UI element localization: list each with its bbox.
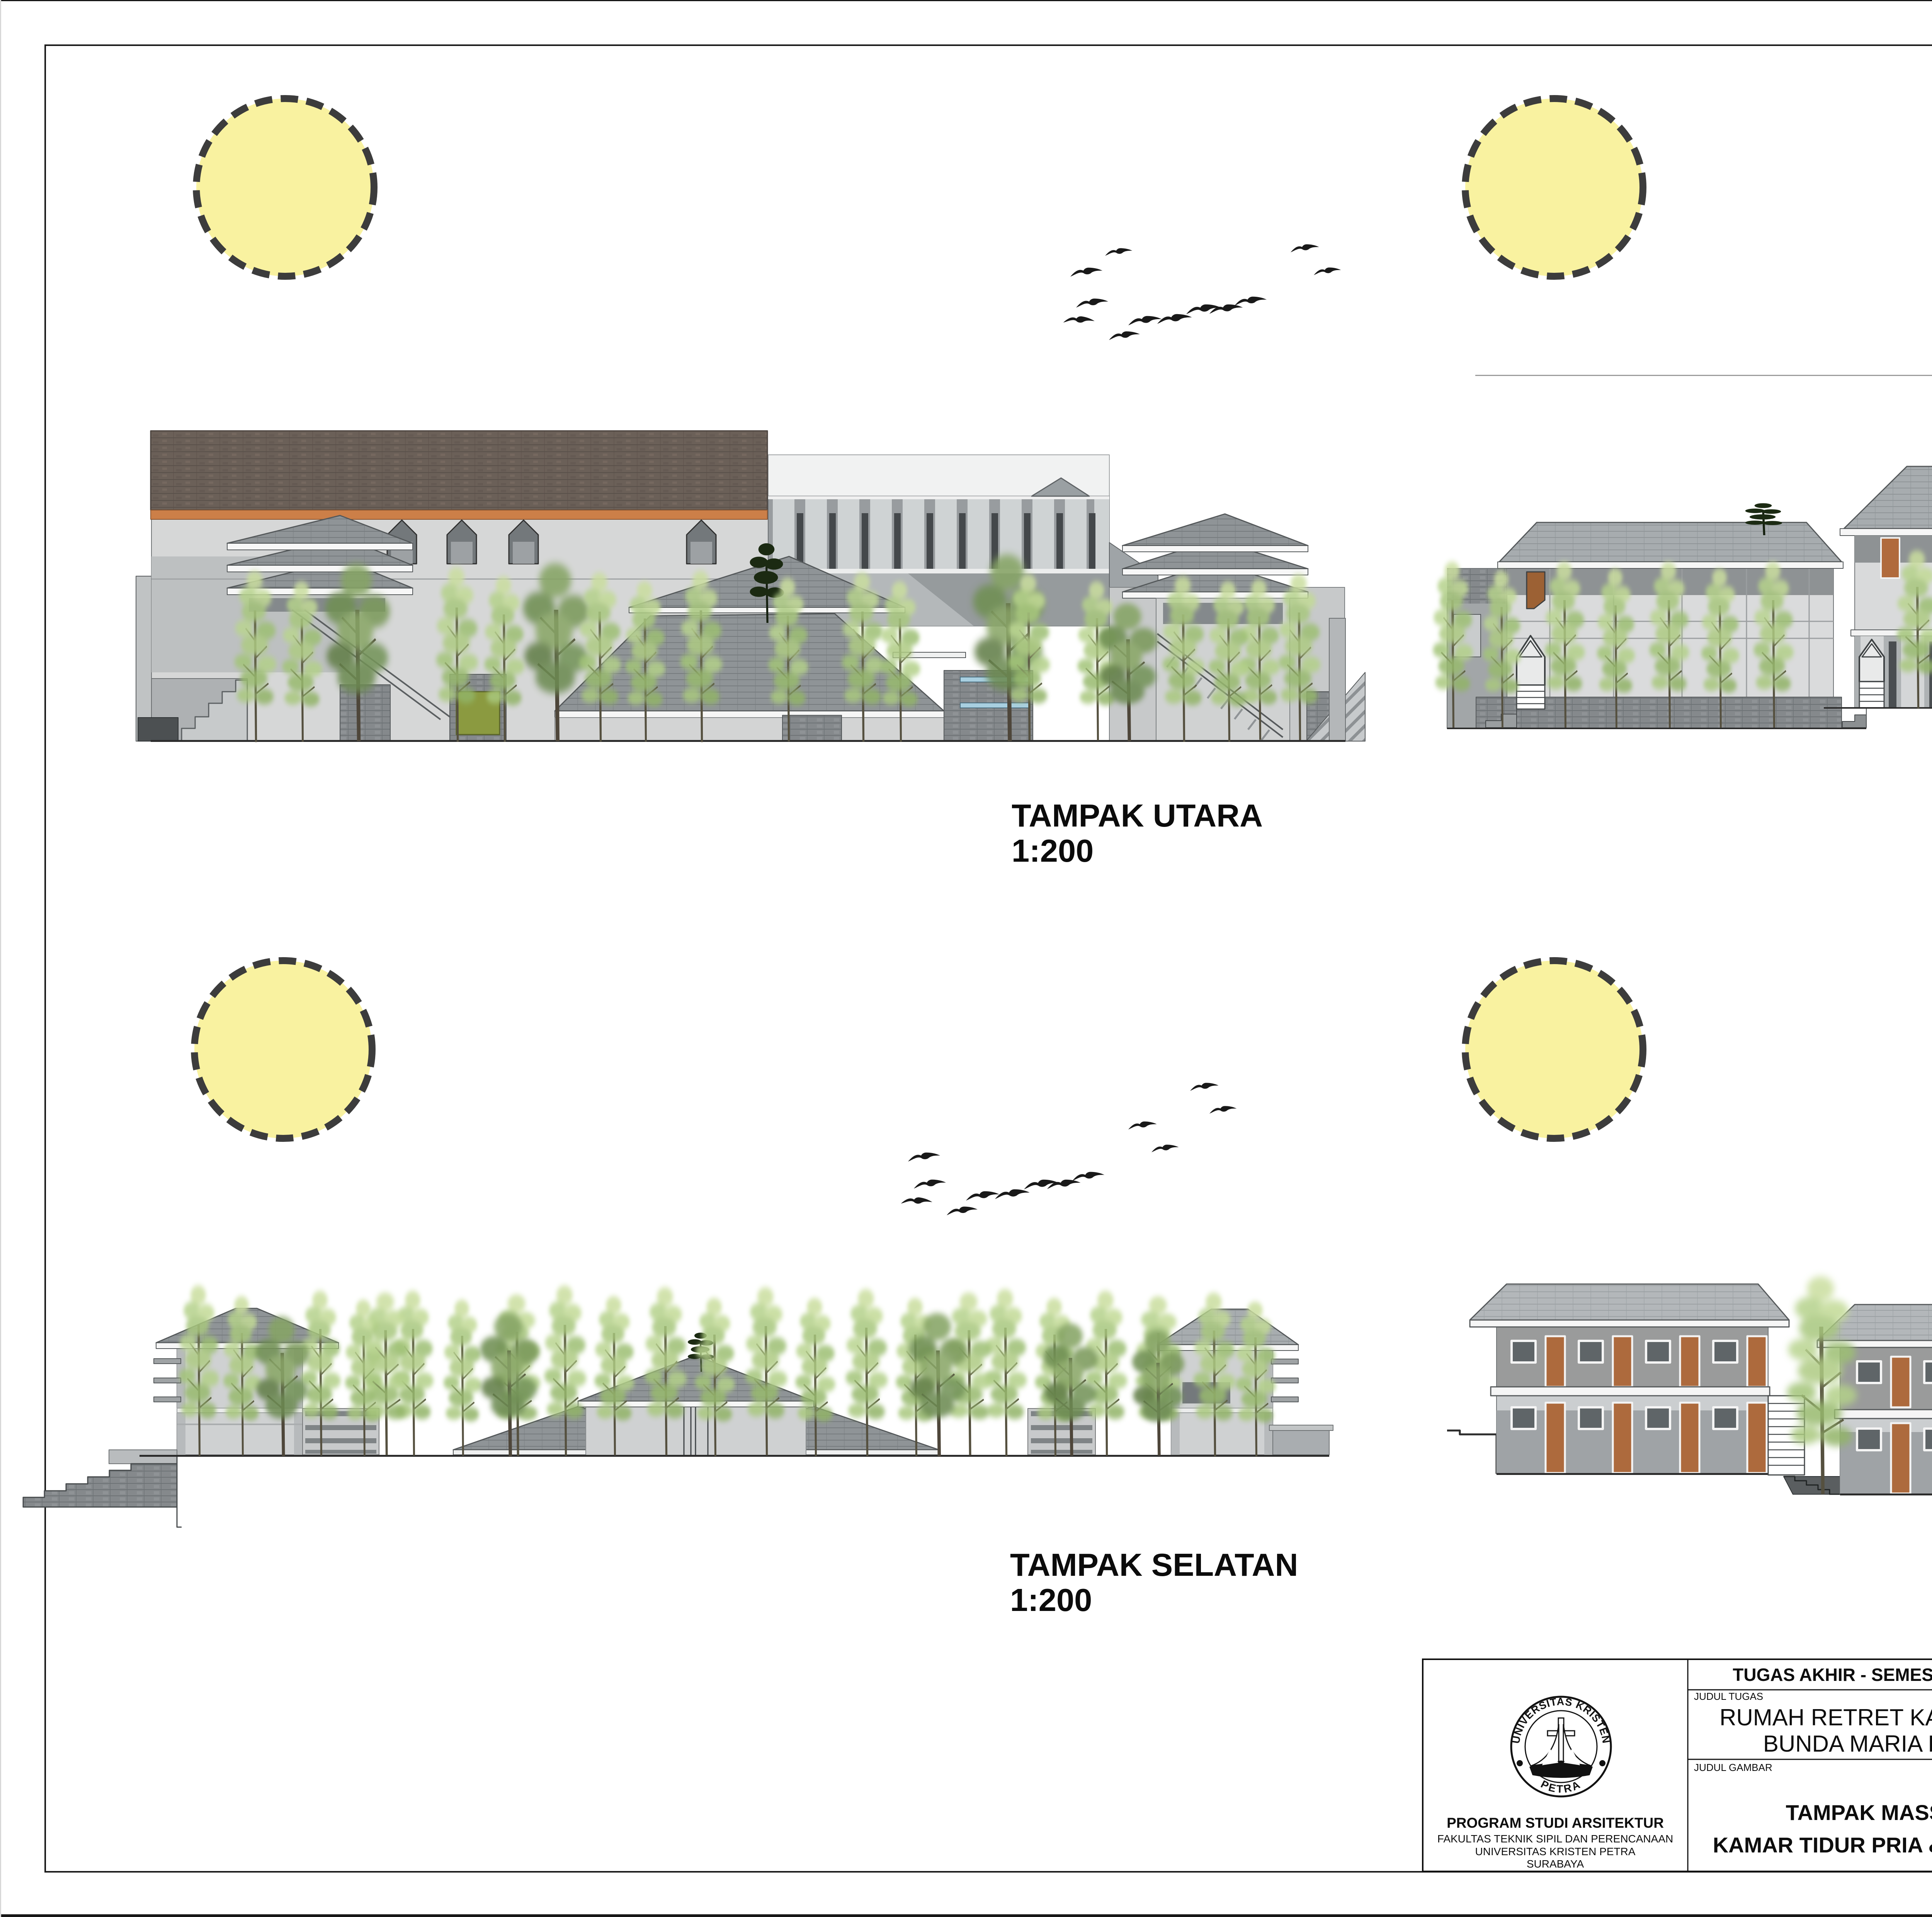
svg-text:TUGAS AKHIR - SEMESTER GENAP 2: TUGAS AKHIR - SEMESTER GENAP 2023/2024 (1733, 1665, 1932, 1685)
svg-text:BUNDA MARIA BANJARBARU: BUNDA MARIA BANJARBARU (1763, 1731, 1932, 1757)
svg-text:1:200: 1:200 (1012, 833, 1094, 869)
svg-text:PROGRAM STUDI ARSITEKTUR: PROGRAM STUDI ARSITEKTUR (1447, 1815, 1664, 1831)
svg-text:TAMPAK UTARA: TAMPAK UTARA (1012, 798, 1263, 833)
svg-text:TAMPAK MASSA: TAMPAK MASSA (1786, 1800, 1932, 1825)
svg-text:JUDUL TUGAS: JUDUL TUGAS (1694, 1691, 1763, 1702)
svg-text:FAKULTAS TEKNIK SIPIL DAN PERE: FAKULTAS TEKNIK SIPIL DAN PERENCANAAN (1437, 1833, 1673, 1845)
svg-text:KAMAR TIDUR PRIA & WANITA: KAMAR TIDUR PRIA & WANITA (1713, 1833, 1932, 1857)
svg-text:UNIVERSITAS KRISTEN PETRA: UNIVERSITAS KRISTEN PETRA (1475, 1846, 1636, 1857)
svg-text:TAMPAK SELATAN: TAMPAK SELATAN (1010, 1547, 1298, 1583)
svg-text:RUMAH RETRET KATOLIK DI PAROKI: RUMAH RETRET KATOLIK DI PAROKI (1719, 1704, 1932, 1730)
svg-text:JUDUL GAMBAR: JUDUL GAMBAR (1694, 1762, 1772, 1773)
svg-text:1:200: 1:200 (1010, 1582, 1092, 1618)
svg-text:SURABAYA: SURABAYA (1527, 1858, 1584, 1870)
